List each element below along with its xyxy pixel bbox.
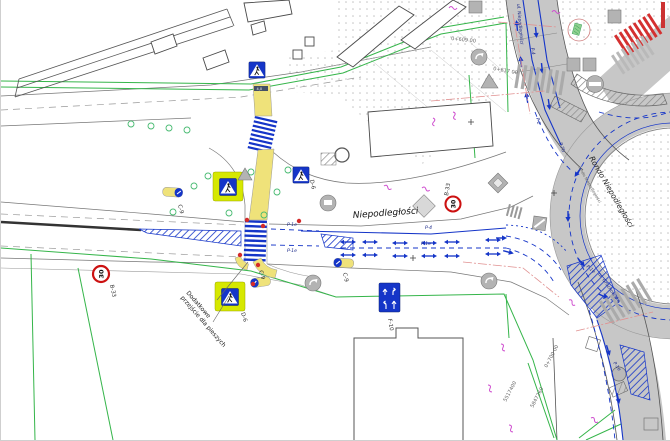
coordinate-label-easting: 5517400 [502, 380, 518, 402]
marking-label-p1e: P-1e [287, 222, 297, 228]
f10-lane-directions-sign [379, 283, 400, 312]
existing-diamond-sign [488, 173, 508, 193]
chainage-label: 0+700 00 [543, 344, 560, 369]
existing-square-sign [567, 58, 580, 71]
existing-c9-sign [481, 273, 497, 289]
street-label-main: Niepodległości [352, 205, 419, 221]
sign-code-b33: B-33 [108, 284, 117, 298]
north-crosswalk [248, 116, 278, 153]
sign-code-c9: C-9 [176, 204, 184, 215]
red-boundary-bar [661, 2, 665, 28]
c9-keep-right-marker [334, 258, 354, 268]
existing-square-sign [532, 216, 547, 231]
speed-limit-value: 30 [97, 269, 105, 279]
sign-code-d6: D-6 [308, 179, 316, 190]
traffic-plan-page: 4,0 30 30 [0, 0, 670, 441]
c9-keep-right-marker [162, 187, 183, 197]
existing-square-sign [469, 1, 482, 13]
marking-label-p4: P-4 [529, 47, 536, 55]
d6-pedestrian-crossing-sign [220, 179, 237, 196]
existing-square-sign [608, 10, 621, 23]
existing-c9-sign [305, 275, 321, 291]
existing-no-entry-sign [587, 76, 604, 93]
existing-square-sign [583, 58, 596, 71]
traffic-plan-canvas: 4,0 30 30 [1, 0, 670, 440]
existing-c9-sign [471, 49, 487, 65]
d6-pedestrian-crossing-sign [293, 167, 309, 183]
marking-label-p1e: P-1e [287, 248, 297, 254]
existing-bus-sign [320, 195, 336, 211]
sign-code-f10: F-10 [386, 318, 394, 331]
sign-code-d6: D-6 [239, 312, 248, 324]
marking-label-p2: P-2 [534, 117, 542, 125]
width-dimension-label: 4,0 [257, 87, 263, 91]
speed-limit-value: 30 [450, 199, 457, 208]
sign-code-c9: C-9 [341, 272, 349, 283]
b33-speed-limit-sign: 30 [93, 266, 109, 282]
b33-speed-limit-sign: 30 [446, 197, 461, 212]
d6-pedestrian-crossing-sign [249, 62, 265, 78]
marking-label-p4: P-4 [425, 225, 432, 231]
marking-label-p1e: P-1e [421, 241, 431, 247]
sign-code-b33: B-33 [444, 182, 452, 196]
